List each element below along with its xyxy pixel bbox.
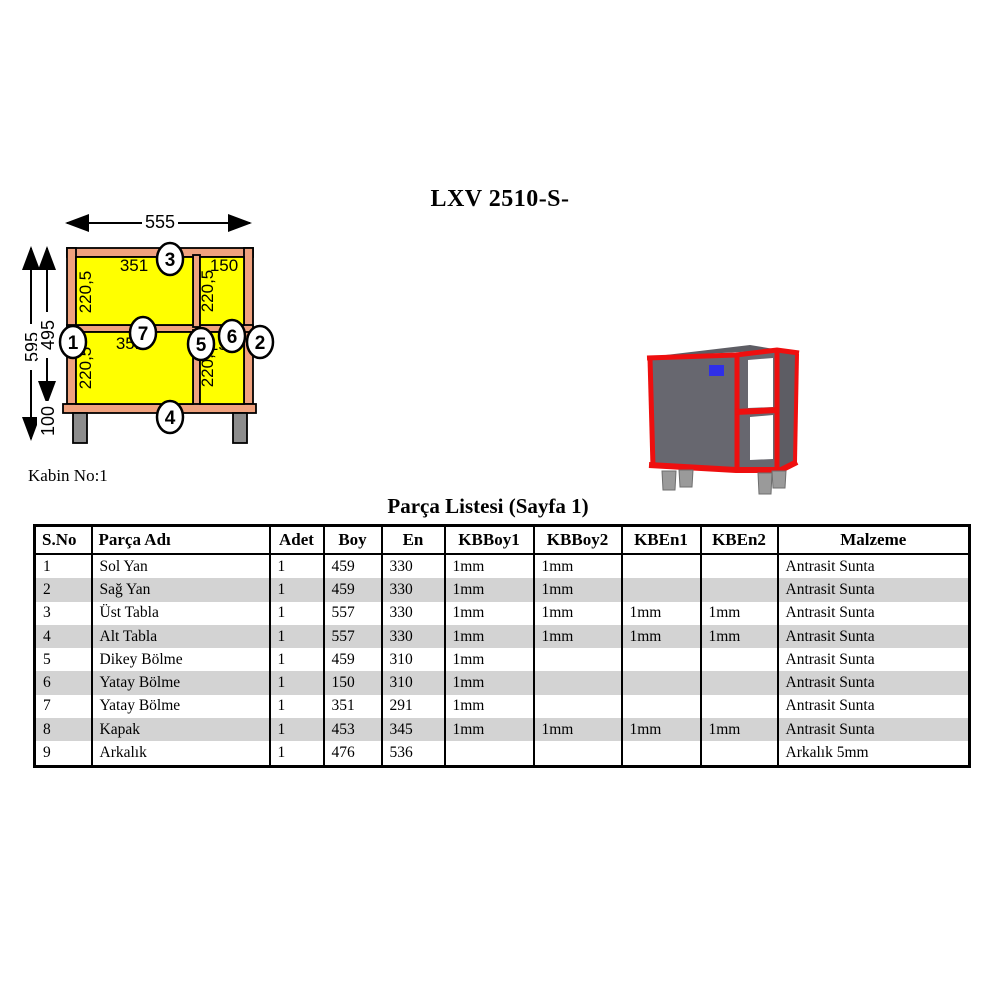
parts-table-title: Parça Listesi (Sayfa 1) <box>33 494 943 519</box>
cell-adet: 1 <box>270 602 324 625</box>
cell-kben1: 1mm <box>622 602 701 625</box>
cell-par-a-ad-: Kapak <box>92 718 270 741</box>
cell-kbboy2: 1mm <box>534 718 622 741</box>
cell-s-no: 5 <box>35 648 92 671</box>
cell-kbboy2 <box>534 648 622 671</box>
svg-text:7: 7 <box>138 324 149 345</box>
cell-boy: 557 <box>324 625 382 648</box>
cell-kben1 <box>622 695 701 718</box>
cell-kbboy1: 1mm <box>445 554 534 578</box>
cell-en: 330 <box>382 602 445 625</box>
table-row: 5Dikey Bölme14593101mmAntrasit Sunta <box>35 648 970 671</box>
svg-text:1: 1 <box>68 333 79 354</box>
leg-back-left <box>679 470 693 487</box>
cell-boy: 557 <box>324 602 382 625</box>
callout-2: 2 <box>247 326 273 358</box>
cell-malzeme: Antrasit Sunta <box>778 578 970 601</box>
cell-kben1: 1mm <box>622 718 701 741</box>
callout-4: 4 <box>157 401 183 433</box>
cell-adet: 1 <box>270 671 324 694</box>
column-header-1: S.No <box>35 526 92 555</box>
cell-boy: 459 <box>324 578 382 601</box>
cell-adet: 1 <box>270 578 324 601</box>
cell-par-a-ad-: Sağ Yan <box>92 578 270 601</box>
callout-1: 1 <box>60 326 86 358</box>
cell-s-no: 7 <box>35 695 92 718</box>
cell-kbboy2: 1mm <box>534 602 622 625</box>
cell-malzeme: Antrasit Sunta <box>778 695 970 718</box>
cell-kben2 <box>701 648 778 671</box>
cell-s-no: 6 <box>35 671 92 694</box>
column-header-5: En <box>382 526 445 555</box>
column-header-7: KBBoy2 <box>534 526 622 555</box>
cell-kben2 <box>701 554 778 578</box>
cell-kben2 <box>701 695 778 718</box>
cell-adet: 1 <box>270 741 324 766</box>
cell-en: 345 <box>382 718 445 741</box>
cell-adet: 1 <box>270 648 324 671</box>
callout-3: 3 <box>157 243 183 275</box>
dimension-width: 555 <box>67 212 250 232</box>
column-header-2: Parça Adı <box>92 526 270 555</box>
cell-en: 536 <box>382 741 445 766</box>
svg-text:5: 5 <box>196 335 207 356</box>
leg-front-right <box>758 473 772 494</box>
table-row: 9Arkalık1476536Arkalık 5mm <box>35 741 970 766</box>
cell-par-a-ad-: Dikey Bölme <box>92 648 270 671</box>
cell-kbboy1: 1mm <box>445 695 534 718</box>
table-row: 7Yatay Bölme13512911mmAntrasit Sunta <box>35 695 970 718</box>
cell-par-a-ad-: Yatay Bölme <box>92 695 270 718</box>
callout-5: 5 <box>188 328 214 360</box>
column-header-8: KBEn1 <box>622 526 701 555</box>
table-row: 4Alt Tabla15573301mm1mm1mm1mmAntrasit Su… <box>35 625 970 648</box>
cell-malzeme: Antrasit Sunta <box>778 671 970 694</box>
cell-kben2 <box>701 578 778 601</box>
cell-en: 310 <box>382 671 445 694</box>
cell-kben1 <box>622 578 701 601</box>
cell-kben2: 1mm <box>701 718 778 741</box>
cell-malzeme: Antrasit Sunta <box>778 602 970 625</box>
cell-adet: 1 <box>270 625 324 648</box>
cell-kben1 <box>622 741 701 766</box>
cell-kbboy2: 1mm <box>534 554 622 578</box>
cell-boy: 351 <box>324 695 382 718</box>
cell-kben1 <box>622 671 701 694</box>
cell-en: 291 <box>382 695 445 718</box>
opening-lower <box>750 415 773 460</box>
cell-en: 310 <box>382 648 445 671</box>
cell-s-no: 3 <box>35 602 92 625</box>
cell-malzeme: Arkalık 5mm <box>778 741 970 766</box>
callout-7: 7 <box>130 317 156 349</box>
cell-kbboy2 <box>534 695 622 718</box>
leg-left <box>73 413 87 443</box>
leg-front-left <box>662 471 676 490</box>
label-top-right-height: 220,5 <box>198 270 217 313</box>
cell-kben1: 1mm <box>622 625 701 648</box>
cell-boy: 453 <box>324 718 382 741</box>
cell-s-no: 9 <box>35 741 92 766</box>
cell-malzeme: Antrasit Sunta <box>778 718 970 741</box>
cell-malzeme: Antrasit Sunta <box>778 648 970 671</box>
cell-kbboy2: 1mm <box>534 625 622 648</box>
cell-kben1 <box>622 554 701 578</box>
svg-text:6: 6 <box>227 327 238 348</box>
dimension-body-height-label: 495 <box>38 320 58 350</box>
cell-kben1 <box>622 648 701 671</box>
cell-malzeme: Antrasit Sunta <box>778 625 970 648</box>
cell-s-no: 1 <box>35 554 92 578</box>
page: LXV 2510-S- 555 595 495 100 <box>0 0 1000 1000</box>
table-row: 6Yatay Bölme11503101mmAntrasit Sunta <box>35 671 970 694</box>
table-header-row: S.NoParça AdıAdetBoyEnKBBoy1KBBoy2KBEn1K… <box>35 526 970 555</box>
cell-adet: 1 <box>270 695 324 718</box>
cell-par-a-ad-: Yatay Bölme <box>92 671 270 694</box>
cell-kbboy1: 1mm <box>445 602 534 625</box>
dimension-body-height: 495 <box>37 248 58 403</box>
leg-right <box>233 413 247 443</box>
cell-par-a-ad-: Sol Yan <box>92 554 270 578</box>
leg-back-right <box>772 471 786 488</box>
column-header-4: Boy <box>324 526 382 555</box>
cell-kbboy1: 1mm <box>445 578 534 601</box>
svg-text:3: 3 <box>165 250 176 271</box>
cabinet-2d-drawing: 555 595 495 100 <box>10 200 280 460</box>
parts-table: S.NoParça AdıAdetBoyEnKBBoy1KBBoy2KBEn1K… <box>33 524 971 768</box>
cell-en: 330 <box>382 625 445 648</box>
cell-en: 330 <box>382 554 445 578</box>
column-header-6: KBBoy1 <box>445 526 534 555</box>
cell-s-no: 8 <box>35 718 92 741</box>
cell-kben2 <box>701 741 778 766</box>
dimension-leg-height-label: 100 <box>38 406 58 436</box>
cabinet-legs-3d <box>662 470 786 494</box>
table-row: 2Sağ Yan14593301mm1mmAntrasit Sunta <box>35 578 970 601</box>
cell-par-a-ad-: Alt Tabla <box>92 625 270 648</box>
opening-upper <box>748 358 773 408</box>
svg-text:2: 2 <box>255 333 266 354</box>
svg-text:4: 4 <box>165 408 176 429</box>
cell-boy: 459 <box>324 648 382 671</box>
cell-s-no: 4 <box>35 625 92 648</box>
cell-boy: 459 <box>324 554 382 578</box>
cell-kbboy1: 1mm <box>445 671 534 694</box>
cell-s-no: 2 <box>35 578 92 601</box>
cell-boy: 476 <box>324 741 382 766</box>
cell-malzeme: Antrasit Sunta <box>778 554 970 578</box>
cell-kbboy2 <box>534 741 622 766</box>
cell-kbboy2: 1mm <box>534 578 622 601</box>
cell-kben2: 1mm <box>701 602 778 625</box>
cell-kben2: 1mm <box>701 625 778 648</box>
cell-kbboy1: 1mm <box>445 648 534 671</box>
cabinet-3d-render <box>620 335 810 505</box>
cell-par-a-ad-: Üst Tabla <box>92 602 270 625</box>
cell-kbboy2 <box>534 671 622 694</box>
column-header-3: Adet <box>270 526 324 555</box>
table-body: 1Sol Yan14593301mm1mmAntrasit Sunta2Sağ … <box>35 554 970 766</box>
dimension-width-label: 555 <box>145 212 175 232</box>
cell-kbboy1: 1mm <box>445 718 534 741</box>
cell-kbboy1: 1mm <box>445 625 534 648</box>
cabin-number-label: Kabin No:1 <box>28 466 108 486</box>
cell-kben2 <box>701 671 778 694</box>
cell-kbboy1 <box>445 741 534 766</box>
table-row: 8Kapak14533451mm1mm1mm1mmAntrasit Sunta <box>35 718 970 741</box>
cell-par-a-ad-: Arkalık <box>92 741 270 766</box>
column-header-9: KBEn2 <box>701 526 778 555</box>
column-header-10: Malzeme <box>778 526 970 555</box>
cell-en: 330 <box>382 578 445 601</box>
table-row: 1Sol Yan14593301mm1mmAntrasit Sunta <box>35 554 970 578</box>
cell-adet: 1 <box>270 718 324 741</box>
table-row: 3Üst Tabla15573301mm1mm1mm1mmAntrasit Su… <box>35 602 970 625</box>
label-top-left-width: 351 <box>120 256 148 275</box>
cell-boy: 150 <box>324 671 382 694</box>
door-handle <box>709 365 724 376</box>
callout-6: 6 <box>219 320 245 352</box>
label-top-left-height: 220,5 <box>76 271 95 314</box>
dimension-leg-height: 100 <box>37 401 58 443</box>
cell-adet: 1 <box>270 554 324 578</box>
